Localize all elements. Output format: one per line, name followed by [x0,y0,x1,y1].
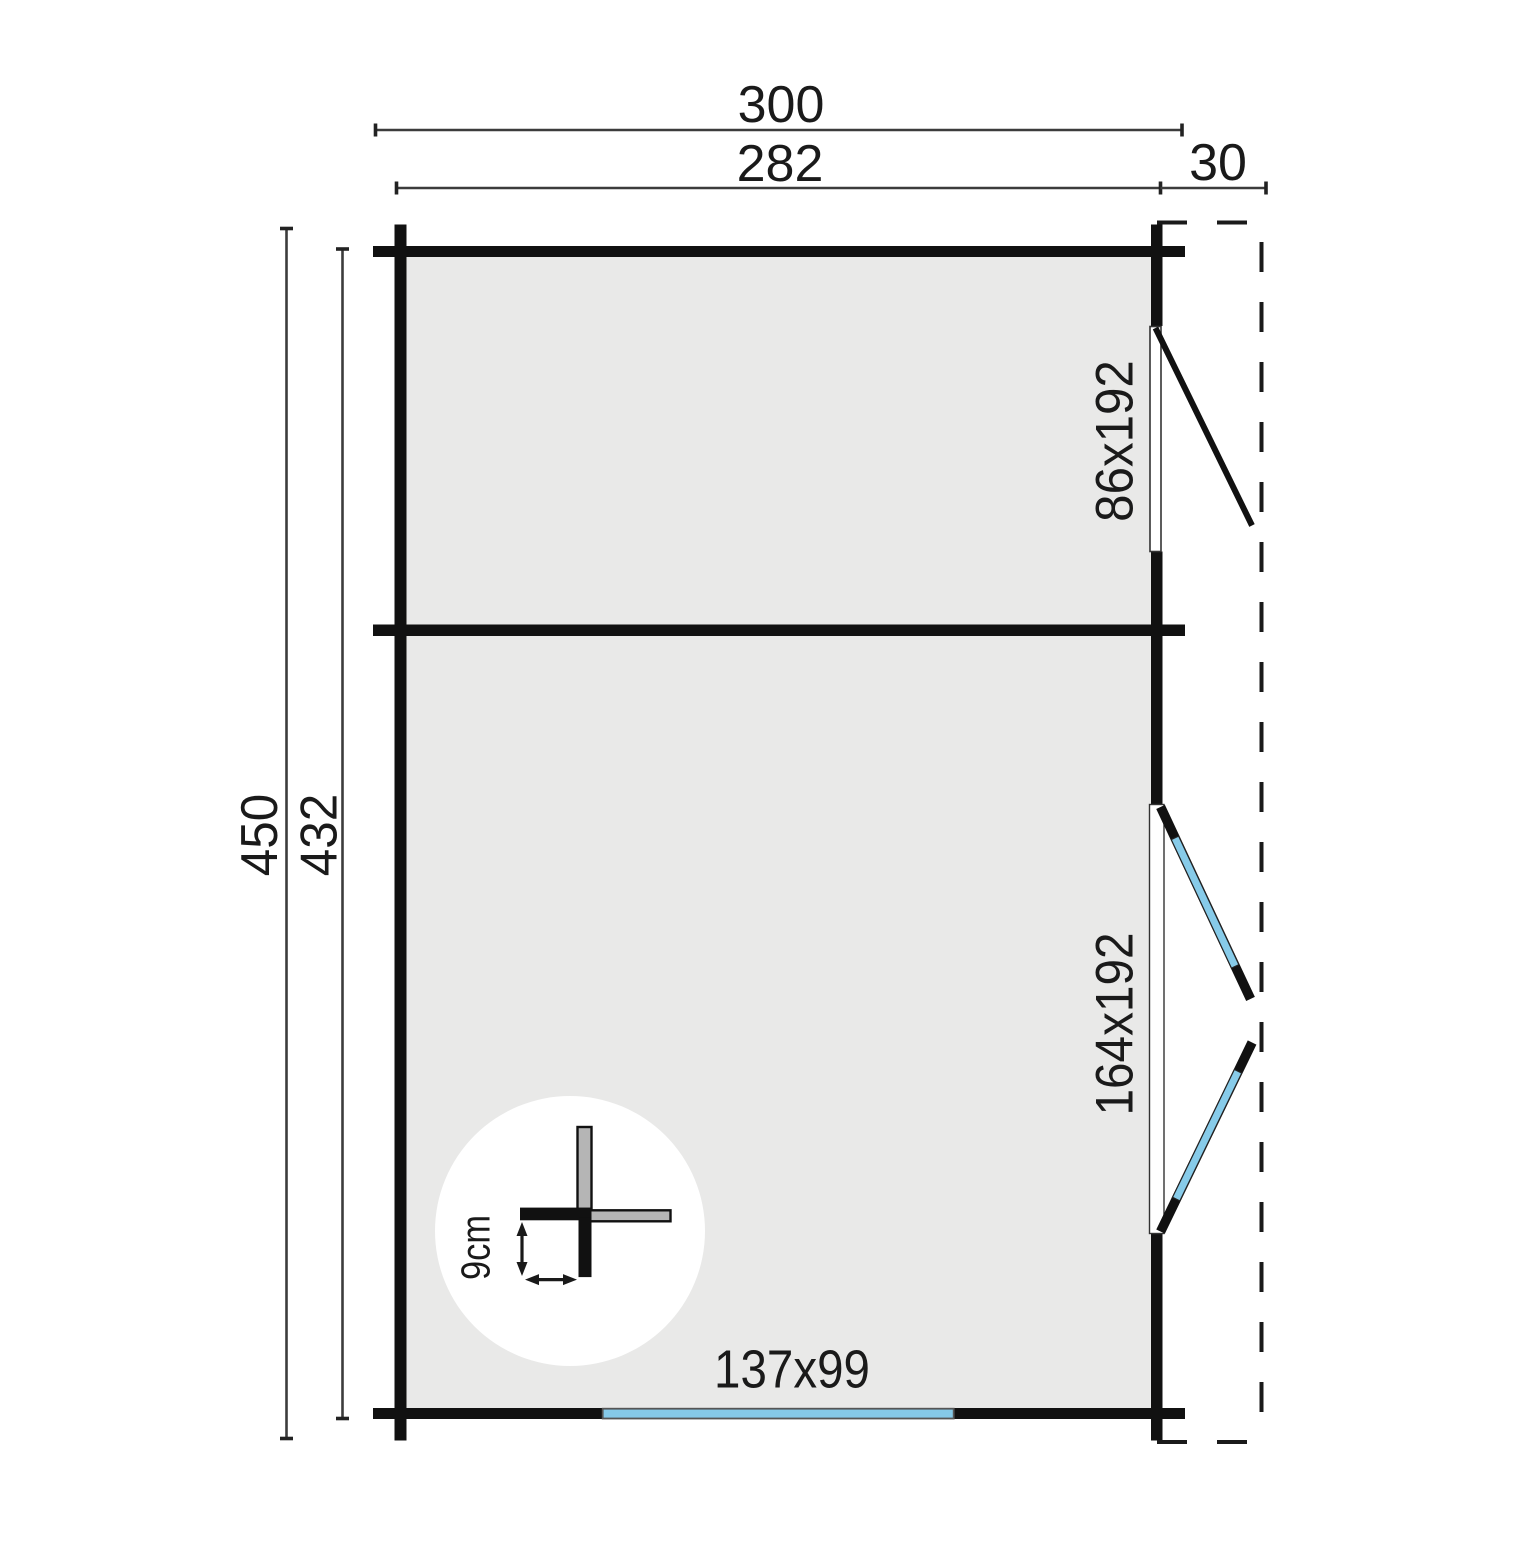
svg-text:164x192: 164x192 [1084,933,1144,1116]
svg-text:432: 432 [289,794,347,876]
svg-text:30: 30 [1189,134,1247,192]
svg-text:86x192: 86x192 [1085,360,1144,522]
svg-text:282: 282 [737,135,824,193]
svg-text:450: 450 [230,794,288,876]
svg-text:300: 300 [738,76,825,134]
svg-text:9cm: 9cm [454,1215,499,1280]
svg-text:137x99: 137x99 [714,1339,870,1400]
